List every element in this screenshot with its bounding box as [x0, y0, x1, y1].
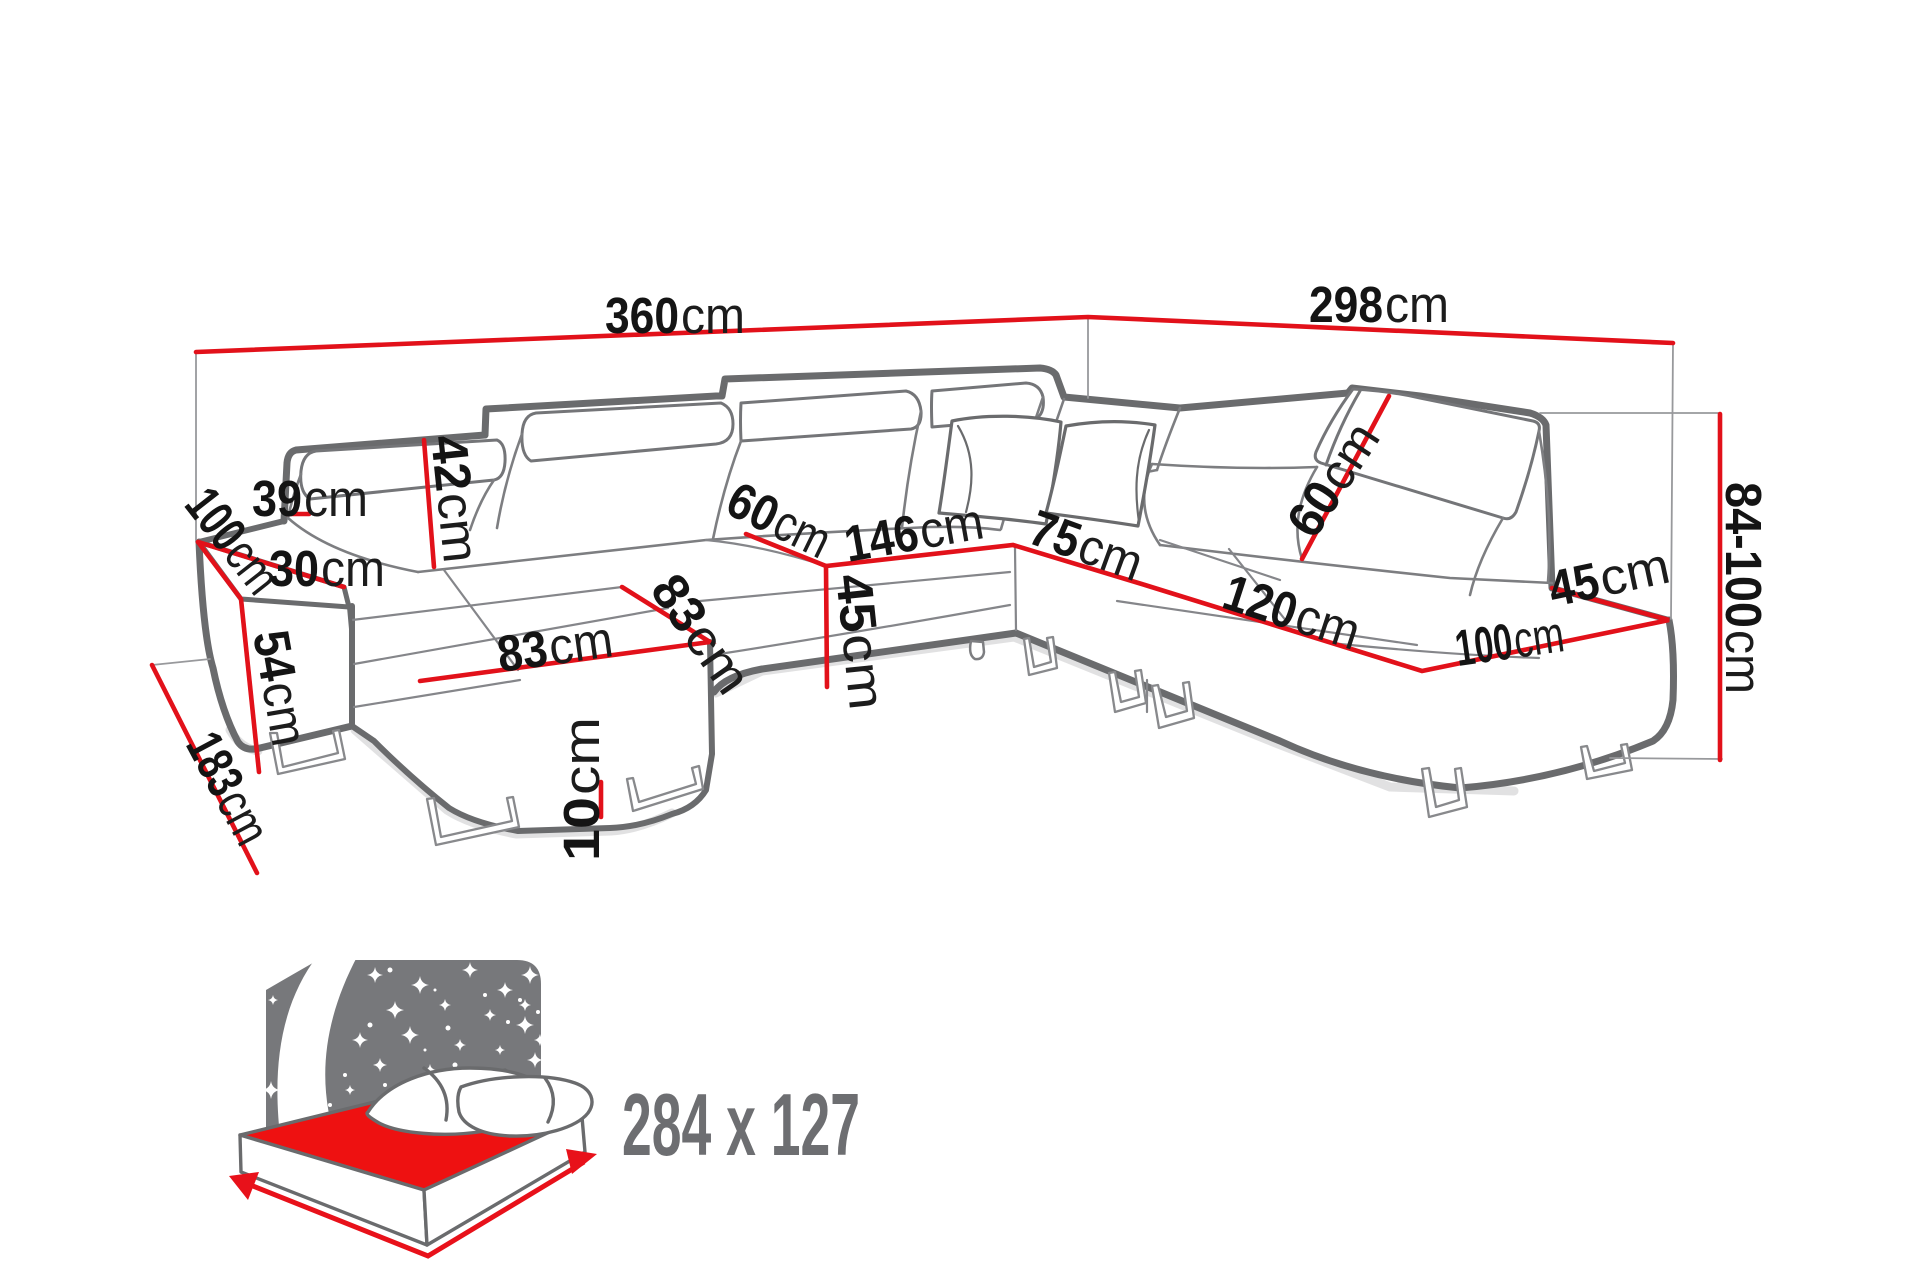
svg-text:84-100cm: 84-100cm — [1715, 482, 1772, 694]
svg-text:298cm: 298cm — [1309, 276, 1449, 333]
svg-text:30cm: 30cm — [269, 540, 385, 597]
svg-text:284 x 127: 284 x 127 — [622, 1075, 860, 1174]
svg-text:45cm: 45cm — [1543, 537, 1674, 618]
svg-text:39cm: 39cm — [252, 470, 368, 527]
svg-text:360cm: 360cm — [605, 287, 745, 344]
svg-text:10cm: 10cm — [553, 717, 610, 861]
